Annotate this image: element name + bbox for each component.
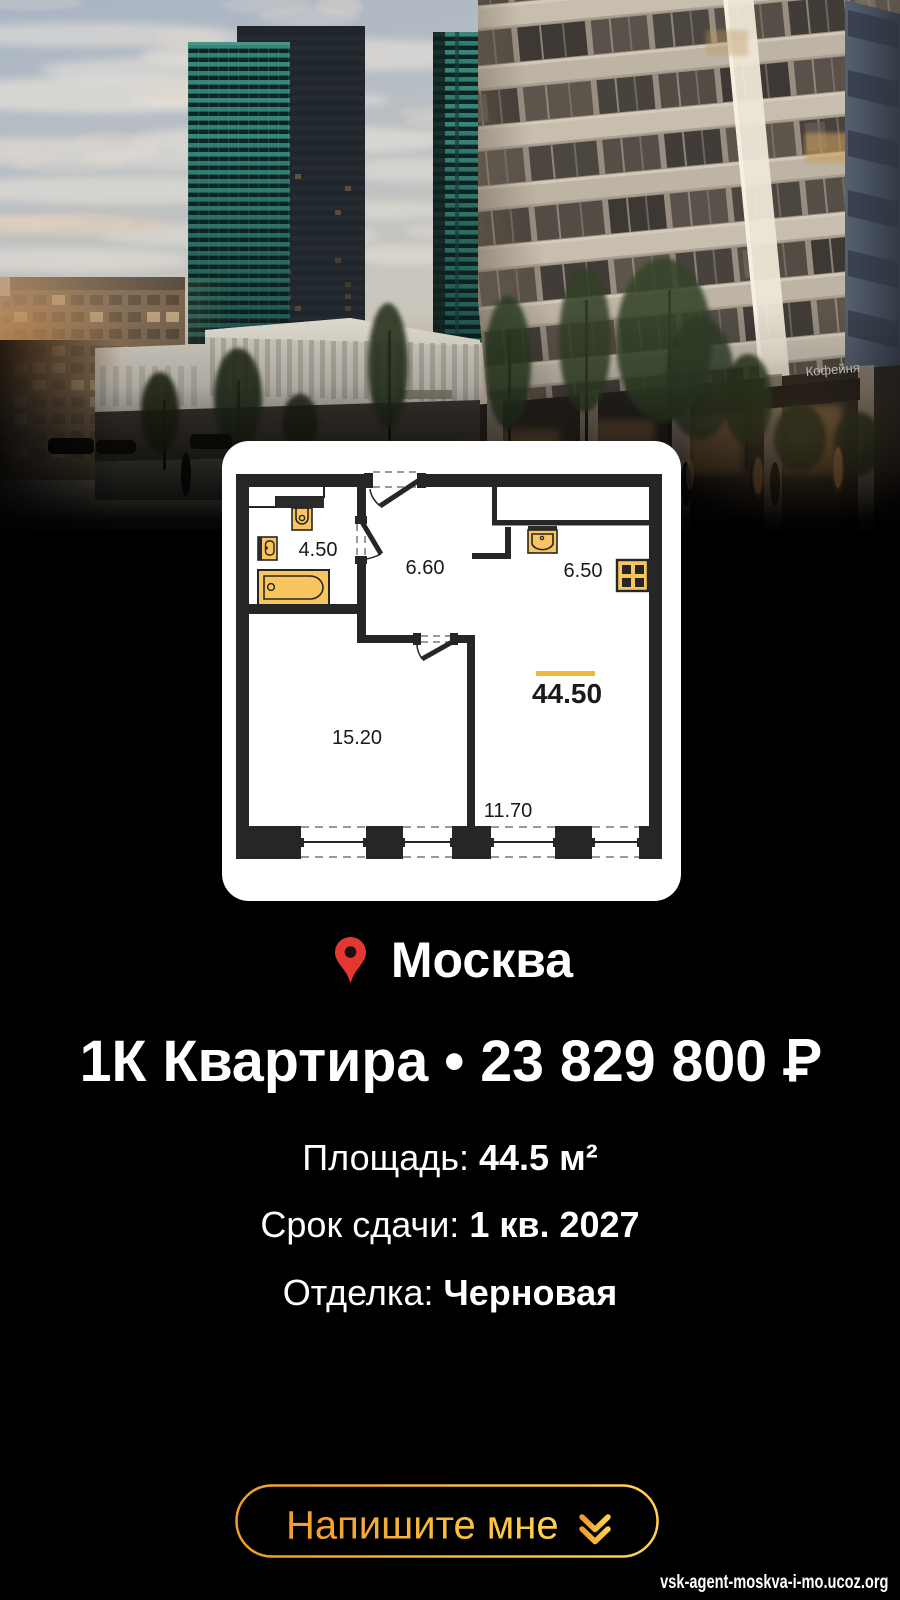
svg-text:6.60: 6.60: [406, 557, 445, 579]
svg-text:44.50: 44.50: [532, 678, 602, 709]
svg-text:Напишите мне: Напишите мне: [286, 1504, 559, 1548]
svg-text:11.70: 11.70: [484, 800, 533, 822]
svg-text:6.50: 6.50: [564, 560, 603, 582]
svg-text:4.50: 4.50: [299, 539, 338, 561]
svg-text:15.20: 15.20: [332, 727, 382, 749]
